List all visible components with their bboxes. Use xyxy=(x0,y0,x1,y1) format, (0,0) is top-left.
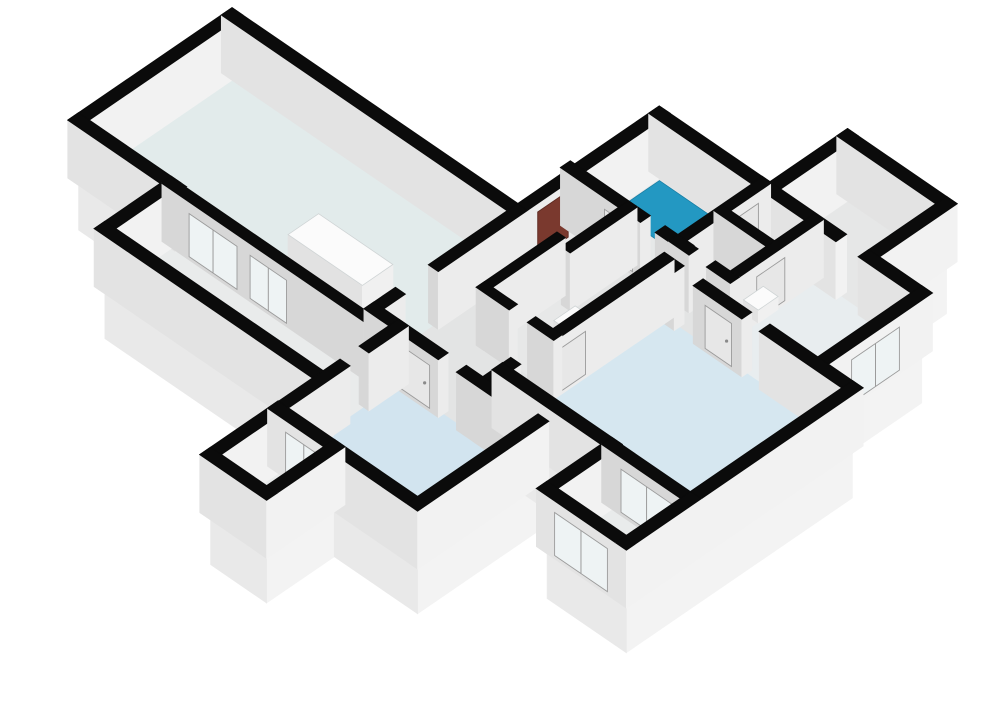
wall-face-south xyxy=(359,346,369,411)
wall-face-east xyxy=(554,335,562,399)
floorplan-3d-view xyxy=(0,0,1000,707)
wall-face-east xyxy=(674,266,684,331)
wall-face-east xyxy=(742,312,752,377)
door-handle xyxy=(423,381,426,384)
wall-face-east xyxy=(438,353,448,418)
wall-face-south xyxy=(428,265,438,330)
wall-face-south xyxy=(616,543,627,608)
floorplan-3d-render xyxy=(0,0,1000,707)
wall-face-east xyxy=(836,234,847,299)
wall-face-south xyxy=(407,504,418,569)
door-handle xyxy=(725,339,728,342)
wall-face-east xyxy=(267,493,278,558)
